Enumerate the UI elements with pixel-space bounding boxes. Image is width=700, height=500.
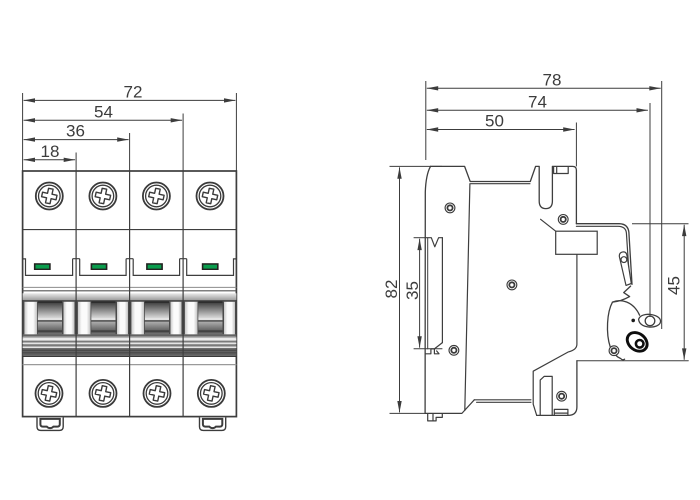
svg-text:78: 78 [543,70,562,89]
svg-text:35: 35 [403,281,422,300]
svg-text:50: 50 [485,112,504,131]
svg-text:54: 54 [94,102,113,121]
svg-text:74: 74 [528,92,547,111]
svg-text:18: 18 [41,142,60,161]
svg-text:45: 45 [665,276,684,295]
svg-text:72: 72 [124,83,143,102]
svg-text:36: 36 [66,122,85,141]
svg-text:82: 82 [382,280,401,299]
